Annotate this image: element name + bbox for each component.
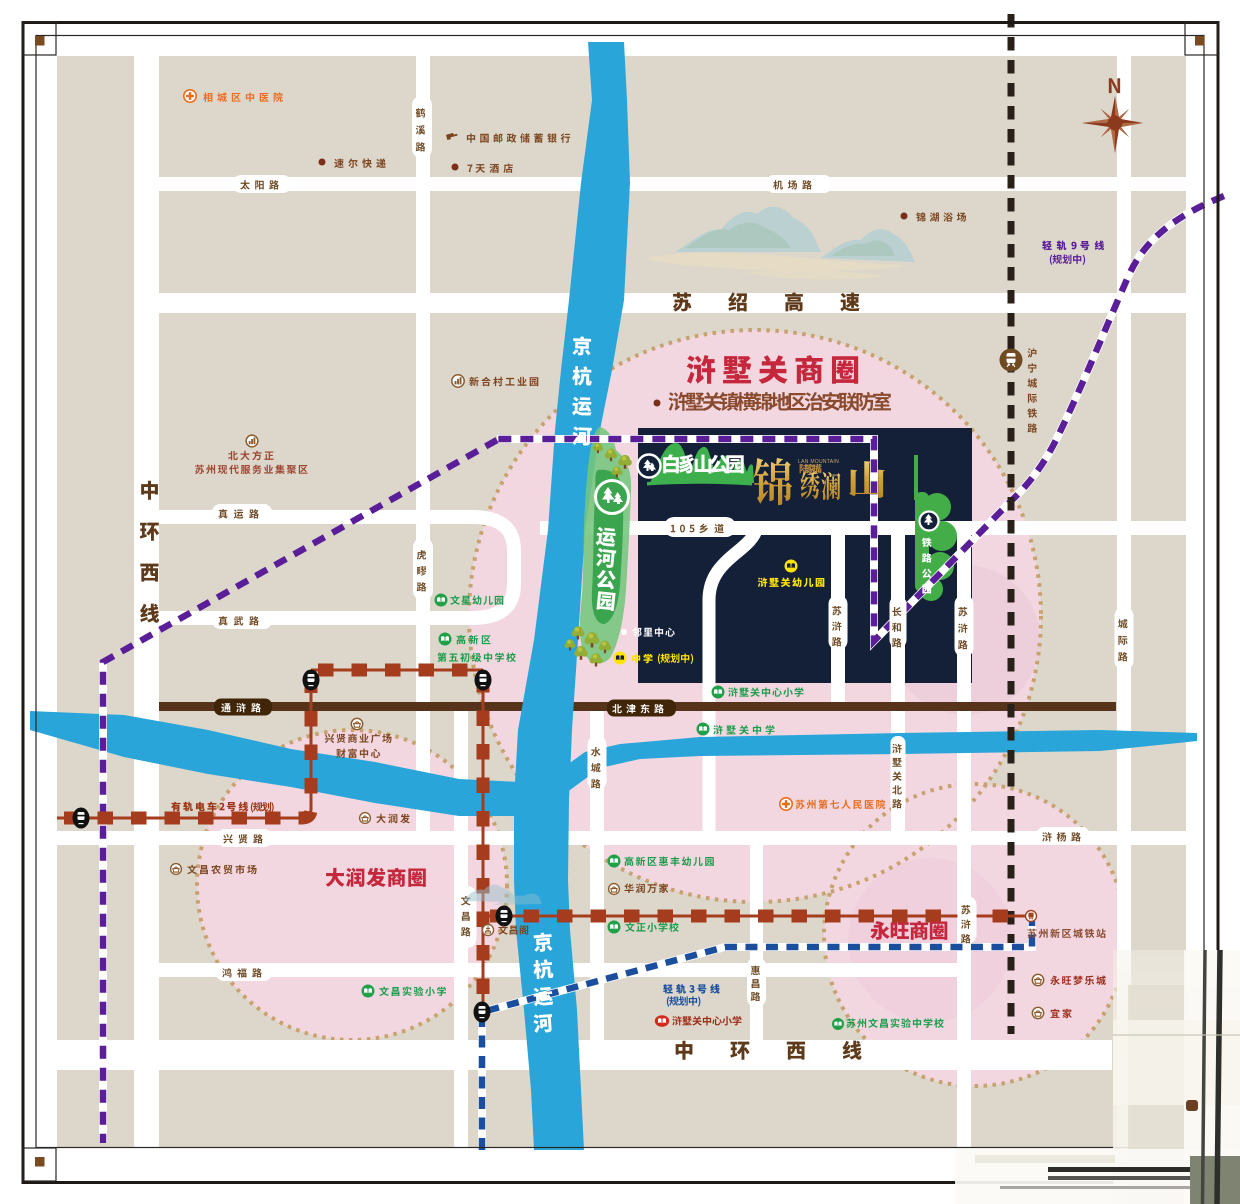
svg-text:LAN MOUNTAIN: LAN MOUNTAIN [798, 459, 839, 465]
